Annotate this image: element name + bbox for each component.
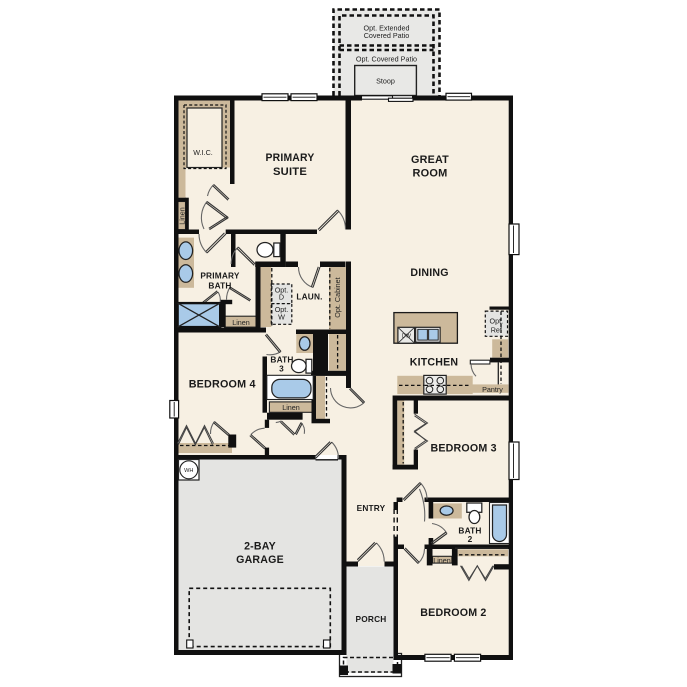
svg-text:PRIMARY: PRIMARY — [200, 271, 240, 281]
svg-text:SUITE: SUITE — [273, 166, 307, 178]
svg-text:2: 2 — [468, 534, 473, 544]
svg-text:Linen: Linen — [433, 556, 451, 565]
svg-text:Linen: Linen — [178, 207, 187, 225]
svg-text:W.I.C.: W.I.C. — [193, 148, 213, 157]
svg-text:ROOM: ROOM — [413, 168, 448, 180]
svg-text:D: D — [279, 293, 284, 302]
svg-text:LAUN.: LAUN. — [296, 292, 322, 302]
svg-text:WH: WH — [184, 468, 193, 474]
svg-text:PORCH: PORCH — [356, 614, 387, 624]
svg-text:BEDROOM 3: BEDROOM 3 — [430, 443, 496, 455]
svg-text:DW: DW — [402, 333, 412, 339]
svg-text:Pantry: Pantry — [482, 385, 503, 394]
svg-text:GREAT: GREAT — [411, 154, 449, 166]
svg-text:Linen: Linen — [232, 318, 250, 327]
svg-text:Linen: Linen — [282, 403, 300, 412]
svg-text:BEDROOM 4: BEDROOM 4 — [189, 379, 256, 391]
svg-text:Opt. Covered Patio: Opt. Covered Patio — [356, 54, 417, 63]
svg-text:BATH: BATH — [208, 281, 231, 291]
svg-text:Stoop: Stoop — [376, 76, 395, 85]
svg-text:W: W — [278, 312, 285, 321]
svg-text:DINING: DINING — [410, 267, 448, 279]
svg-text:Opt. Cabinet: Opt. Cabinet — [333, 277, 342, 317]
svg-text:ENTRY: ENTRY — [357, 503, 386, 513]
svg-text:PRIMARY: PRIMARY — [266, 152, 315, 164]
svg-text:KITCHEN: KITCHEN — [410, 357, 458, 369]
svg-text:GARAGE: GARAGE — [236, 554, 284, 566]
svg-text:Covered Patio: Covered Patio — [364, 31, 410, 40]
svg-text:2-BAY: 2-BAY — [244, 541, 276, 553]
svg-text:Opt.: Opt. — [490, 316, 504, 325]
svg-text:3: 3 — [279, 364, 284, 374]
svg-text:Ref: Ref — [491, 325, 502, 334]
svg-text:BEDROOM 2: BEDROOM 2 — [420, 607, 486, 619]
